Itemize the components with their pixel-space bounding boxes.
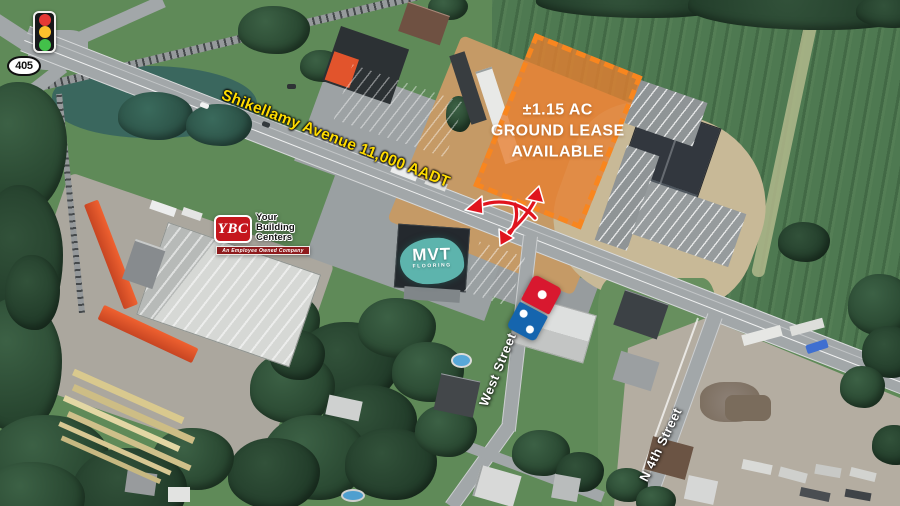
- ybc-logo-name: Your Building Centers: [256, 213, 295, 243]
- route-405-shield: 405: [7, 56, 41, 76]
- ybc-logo-abbr: YBC: [214, 215, 252, 243]
- parcel-line-1: ±1.15 AC: [491, 100, 625, 121]
- ybc-logo: YBC Your Building Centers An Employee Ow…: [214, 213, 314, 261]
- west-street-label: West Street: [476, 330, 519, 408]
- access-arrows-icon: [449, 184, 551, 248]
- parcel-line-2: GROUND LEASE: [491, 121, 625, 142]
- traffic-light-icon: [33, 11, 56, 53]
- n-4th-street-label: N 4th Street: [636, 405, 685, 484]
- mvt-logo-name: MVT: [399, 237, 464, 264]
- green-light: [39, 39, 51, 51]
- shikellamy-road-label: Shikellamy Avenue 11,000 AADT: [219, 87, 452, 192]
- aerial-site-map: ±1.15 AC GROUND LEASE AVAILABLE Shikella…: [0, 0, 900, 506]
- red-light: [39, 14, 51, 26]
- mvt-logo: MVT FLOORING: [399, 237, 465, 285]
- ybc-name-line3: Centers: [256, 233, 295, 243]
- dominos-logo: [505, 274, 562, 344]
- parcel-text: ±1.15 AC GROUND LEASE AVAILABLE: [491, 100, 625, 163]
- ybc-logo-tagline: An Employee Owned Company: [216, 246, 310, 255]
- yellow-light: [39, 26, 51, 38]
- annotation-layer: ±1.15 AC GROUND LEASE AVAILABLE Shikella…: [0, 0, 900, 506]
- parcel-line-3: AVAILABLE: [491, 142, 625, 163]
